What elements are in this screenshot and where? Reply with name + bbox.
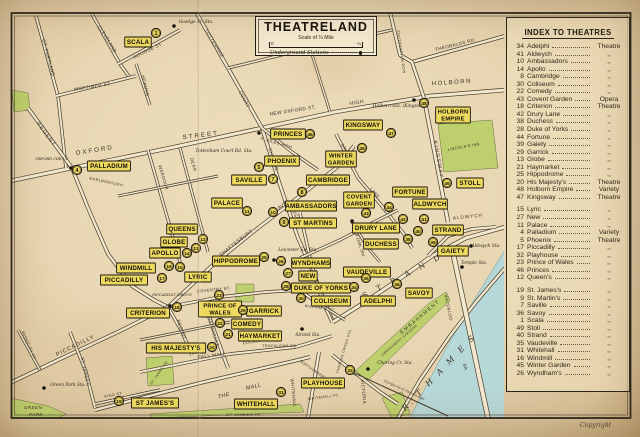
theatre-wyndhams: WYNDHAMS26 xyxy=(276,256,330,268)
index-row: 19St. James's,, xyxy=(511,287,625,295)
index-row-name: Criterion xyxy=(527,103,552,110)
theatre-label: PALACE xyxy=(214,200,240,207)
index-row: 13Globe,, xyxy=(511,156,625,164)
street-label: COURT xyxy=(238,90,251,108)
index-row-leader xyxy=(577,263,590,264)
index-row-leader xyxy=(575,100,590,101)
index-row-name: Coliseum xyxy=(527,81,555,88)
index-row-type: ,, xyxy=(593,171,625,178)
index-row-number: 10 xyxy=(511,58,527,65)
station-dot xyxy=(168,304,172,308)
index-row-leader xyxy=(548,160,590,161)
theatre-st-martins: ST MARTINS9 xyxy=(279,217,336,228)
index-row-number: 21 xyxy=(511,164,527,171)
station-dot xyxy=(366,367,370,371)
index-row-name: Garrick xyxy=(527,149,549,156)
theatre-marker-number: 16 xyxy=(166,264,172,270)
index-row-type: ,, xyxy=(593,244,625,251)
index-row-name: Aldwych xyxy=(527,51,552,58)
theatre-label: ST JAMES'S xyxy=(136,400,175,407)
index-row-name: St. James's xyxy=(527,287,561,294)
index-row-leader xyxy=(558,85,590,86)
road xyxy=(412,36,505,62)
index-row: 12Queen's,, xyxy=(511,274,625,282)
theatre-marker-number: 44 xyxy=(386,205,392,211)
index-row-leader xyxy=(554,241,590,242)
index-row-type: ,, xyxy=(593,134,625,141)
index-row: 27New,, xyxy=(511,214,625,222)
street-label: GT. PORTLAND xyxy=(41,39,56,77)
index-row-leader xyxy=(544,210,590,211)
index-row-leader xyxy=(559,198,590,199)
index-row-type: Variety xyxy=(593,229,625,236)
index-row-type: ,, xyxy=(593,88,625,95)
theatre-label: COMEDY xyxy=(233,321,262,328)
index-row: 46Princes,, xyxy=(511,267,625,275)
index-row-type: ,, xyxy=(593,332,625,339)
theatre-label: SCALA xyxy=(127,39,150,46)
station-label: Charing Cr. Sta. xyxy=(377,361,413,366)
index-row: 35Vaudeville,, xyxy=(511,340,625,348)
index-row-number: 31 xyxy=(511,347,527,354)
street-label: THE xyxy=(217,392,230,401)
theatre-label: QUEENS xyxy=(168,226,195,233)
index-row-leader xyxy=(574,366,591,367)
theatre-label: COLISEUM xyxy=(314,298,348,305)
theatre-marker-number: 9 xyxy=(283,220,286,226)
index-row-number: 42 xyxy=(511,111,527,118)
street-label: MORTIMER ST. xyxy=(74,81,112,92)
index-row-leader xyxy=(558,248,590,249)
index-row-type: ,, xyxy=(593,81,625,88)
index-row-name: Globe xyxy=(527,156,545,163)
index-row-name: Palladium xyxy=(527,229,556,236)
theatre-label: ALDWYCH xyxy=(413,201,446,208)
index-row: 10Ambassadors,, xyxy=(511,58,625,66)
theatre-marker-number: 12 xyxy=(200,237,206,243)
index-row-name: Piccadilly xyxy=(527,244,555,251)
theatre-marker-number: 41 xyxy=(421,217,427,223)
index-row-type: ,, xyxy=(593,325,625,332)
theatre-aldwych: ALDWYCH41 xyxy=(413,199,448,224)
copyright-note: Copyright xyxy=(580,422,611,429)
index-row-type: ,, xyxy=(593,58,625,65)
index-row-type: ,, xyxy=(593,274,625,281)
index-row-leader xyxy=(550,336,590,337)
index-row-number: 49 xyxy=(511,325,527,332)
index-row-number: 27 xyxy=(511,214,527,221)
street-label: TOTTENHAM xyxy=(204,28,225,58)
station-label: Tottenham Court Rd. Sta. xyxy=(196,149,253,154)
index-row-leader xyxy=(563,299,590,300)
index-row-type: ,, xyxy=(593,66,625,73)
station-label: PICCADILLY CIRCUS xyxy=(151,293,192,297)
index-row-number: 4 xyxy=(511,229,527,236)
theatre-lyric: LYRIC15 xyxy=(175,262,211,282)
street-label: OXFORD xyxy=(75,144,114,157)
index-row-leader xyxy=(552,47,590,48)
theatre-label: GARDEN xyxy=(346,201,372,207)
station-dot xyxy=(300,327,304,331)
theatre-label: SAVOY xyxy=(408,290,431,297)
theatre-garrick: GARRICK29 xyxy=(238,305,281,316)
theatre-piccadilly: PICCADILLY17 xyxy=(101,273,167,285)
index-row-name: Holborn Empire xyxy=(527,186,573,193)
index-row-type: ,, xyxy=(593,149,625,156)
index-row-number: 45 xyxy=(511,362,527,369)
theatre-marker-number: 27 xyxy=(285,271,291,277)
theatre-marker-number: 49 xyxy=(444,181,450,187)
theatre-marker-number: 36 xyxy=(394,282,400,288)
index-row-name: Strand xyxy=(527,332,547,339)
street-label: ALDWYCH xyxy=(453,212,483,220)
map-layer: GT. PORTLANDCLEVELANDGOODGE STMORTIMER S… xyxy=(10,12,505,418)
index-row-leader xyxy=(549,70,590,71)
index-row-type: ,, xyxy=(593,310,625,317)
index-group: 34AdelphiTheatre41Aldwych,,10Ambassadors… xyxy=(511,43,625,201)
index-row: 23Prince of Wales,, xyxy=(511,259,625,267)
index-row-number: 20 xyxy=(511,179,527,186)
index-row: 25Hippodrome,, xyxy=(511,171,625,179)
index-row-type: ,, xyxy=(593,222,625,229)
theatre-marker-number: 40 xyxy=(415,229,421,235)
index-row-name: Prince of Wales xyxy=(527,259,574,266)
index-row-leader xyxy=(563,115,590,116)
index-row-type: ,, xyxy=(593,355,625,362)
theatre-label: KINGSWAY xyxy=(346,122,381,129)
index-row-type: ,, xyxy=(593,340,625,347)
index-row-number: 43 xyxy=(511,96,527,103)
index-row-name: Hippodrome xyxy=(527,171,563,178)
theatre-label: PALLADIUM xyxy=(90,163,128,170)
index-row-leader xyxy=(559,233,590,234)
theatre-label: CAMBRIDGE xyxy=(308,177,348,184)
index-row-type: Opera xyxy=(593,96,625,103)
theatre-marker-number: 45 xyxy=(359,146,365,152)
index-row-leader xyxy=(552,271,590,272)
map-title: THEATRELAND xyxy=(256,20,376,34)
station-dot xyxy=(172,24,176,28)
index-row: 8Cambridge,, xyxy=(511,73,625,81)
street-label: EMBANKMENT GARDENS xyxy=(381,324,419,357)
index-row: 22Comedy,, xyxy=(511,88,625,96)
theatre-label: EMPIRE xyxy=(441,116,464,122)
index-row-name: Lyric xyxy=(527,206,541,213)
index-row-number: 44 xyxy=(511,134,527,141)
index-row-leader xyxy=(550,306,590,307)
theatre-label: WALES xyxy=(209,310,231,316)
index-row-leader xyxy=(558,351,590,352)
index-row-name: Phoenix xyxy=(527,237,551,244)
index-row: 39Gaiety,, xyxy=(511,141,625,149)
station-dot xyxy=(42,386,46,390)
index-row: 45Winter Garden,, xyxy=(511,362,625,370)
theatre-marker-number: 1 xyxy=(155,31,158,37)
index-row-name: Princes xyxy=(527,267,549,274)
index-row-type: ,, xyxy=(593,252,625,259)
theatre-label: COVENT xyxy=(346,194,372,200)
station-dot xyxy=(412,98,416,102)
index-row-type: ,, xyxy=(593,73,625,80)
street-label: WHITEHALL xyxy=(290,378,298,407)
index-row: 1Scala,, xyxy=(511,317,625,325)
index-row: 18CriterionTheatre xyxy=(511,103,625,111)
index-row-number: 7 xyxy=(511,302,527,309)
index-row-leader xyxy=(563,77,590,78)
theatre-marker-number: 48 xyxy=(421,101,427,107)
index-row-number: 29 xyxy=(511,149,527,156)
theatre-strand: STRAND40 xyxy=(413,225,463,236)
theatre-label: WINDMILL xyxy=(120,265,153,272)
theatre-label: ST MARTINS xyxy=(293,220,333,227)
theatre-label: WYNDHAMS xyxy=(292,260,331,267)
theatre-marker-number: 34 xyxy=(351,285,357,291)
index-row: 42Drury Lane,, xyxy=(511,111,625,119)
index-row-type: ,, xyxy=(593,141,625,148)
street-label: MARLBOROUGH xyxy=(89,176,124,187)
index-row-type: ,, xyxy=(593,362,625,369)
theatre-marker-number: 31 xyxy=(278,390,284,396)
map-title-box: THEATRELAND Scale of ¼ Mile 0 ¼ Undergro… xyxy=(255,16,377,56)
index-row-number: 40 xyxy=(511,332,527,339)
index-row-type: ,, xyxy=(593,206,625,213)
index-row-type: ,, xyxy=(593,118,625,125)
index-row-leader xyxy=(555,55,590,56)
theatre-marker-number: 38 xyxy=(405,237,411,243)
index-row-name: Apollo xyxy=(527,66,546,73)
theatre-label: PRINCE OF xyxy=(203,303,237,309)
map-sheet: GT. PORTLANDCLEVELANDGOODGE STMORTIMER S… xyxy=(0,0,640,437)
theatre-duke-of-yorks: DUKE OF YORKS28 xyxy=(281,281,350,293)
index-row-leader xyxy=(565,374,590,375)
theatre-marker-number: 23 xyxy=(216,293,222,299)
index-row-type: ,, xyxy=(593,126,625,133)
index-group: 15Lyric,,27New,,11Palace,,4PalladiumVari… xyxy=(511,206,625,281)
theatre-marker-number: 7 xyxy=(272,177,275,183)
theatre-stoll: STOLL49 xyxy=(442,178,483,188)
street-label: GREEN xyxy=(24,405,43,410)
index-row-type: ,, xyxy=(593,317,625,324)
index-row-name: Palace xyxy=(527,222,547,229)
index-row: 31Whitehall,, xyxy=(511,347,625,355)
theatre-label: NEW xyxy=(300,273,315,280)
index-row-number: 39 xyxy=(511,141,527,148)
index-row-type: Theatre xyxy=(593,237,625,244)
street-label: SHAFTESBURY xyxy=(218,228,254,258)
theatre-label: HIPPODROME xyxy=(214,258,258,265)
index-row-leader xyxy=(555,92,590,93)
theatre-saville: SAVILLE7 xyxy=(232,174,278,185)
legend-leader xyxy=(331,52,357,53)
theatre-marker-number: 18 xyxy=(174,305,180,311)
theatre-marker-number: 21 xyxy=(225,332,231,338)
index-row: 11Palace,, xyxy=(511,222,625,230)
index-row-leader xyxy=(561,256,590,257)
index-row-leader xyxy=(547,321,590,322)
theatre-marker-number: 19 xyxy=(116,399,122,405)
index-row-type: ,, xyxy=(593,156,625,163)
index-list: 34AdelphiTheatre41Aldwych,,10Ambassadors… xyxy=(511,43,625,378)
index-row-name: New xyxy=(527,214,540,221)
road xyxy=(390,12,424,98)
street-label: TRAFALGAR SQ. xyxy=(262,344,297,348)
index-row: 34AdelphiTheatre xyxy=(511,43,625,51)
theatre-apollo: APOLLO14 xyxy=(150,248,192,258)
theatre-marker-number: 46 xyxy=(307,132,313,138)
theatre-marker-number: 30 xyxy=(298,296,304,302)
index-row-name: Haymarket xyxy=(527,164,559,171)
theatre-marker-number: 14 xyxy=(184,251,190,257)
index-row-name: Saville xyxy=(527,302,547,309)
station-label: Aldwych Sta. xyxy=(470,244,500,249)
index-row-number: 18 xyxy=(511,103,527,110)
index-row-leader xyxy=(576,190,590,191)
theatre-label: DUCHESS xyxy=(365,241,397,248)
station-label: Green Park Sta. xyxy=(50,383,85,388)
theatre-marker-number: 11 xyxy=(244,209,249,215)
theatre-duchess: DUCHESS38 xyxy=(364,234,413,249)
index-row: 14Apollo,, xyxy=(511,66,625,74)
index-row-name: Adelphi xyxy=(527,43,549,50)
theatre-label: PHOENIX xyxy=(267,158,297,165)
index-row: 47KingswayTheatre xyxy=(511,194,625,202)
theatre-label: HIS MAJESTY'S xyxy=(151,345,200,352)
index-row: 49Stoll,, xyxy=(511,325,625,333)
index-row: 40Strand,, xyxy=(511,332,625,340)
index-row-type: ,, xyxy=(593,347,625,354)
theatre-label: GARDEN xyxy=(328,160,354,166)
index-row-type: ,, xyxy=(593,111,625,118)
index-row-name: Windmill xyxy=(527,355,552,362)
index-row-number: 28 xyxy=(511,126,527,133)
index-row: 28Duke of Yorks,, xyxy=(511,126,625,134)
index-row-number: 47 xyxy=(511,194,527,201)
street-label: COVENTRY ST. xyxy=(197,285,231,294)
road xyxy=(310,48,330,112)
theatre-label: WHITEHALL xyxy=(237,401,275,408)
theatre-label: HOLBORN xyxy=(438,109,469,115)
index-row: 5PhoenixTheatre xyxy=(511,237,625,245)
station-dot xyxy=(257,131,261,135)
index-row-number: 15 xyxy=(511,206,527,213)
theatre-marker-number: 15 xyxy=(177,265,183,271)
index-row-name: His Majesty's xyxy=(527,179,566,186)
theatre-windmill: WINDMILL16 xyxy=(117,261,174,273)
index-row: 26Wyndham's,, xyxy=(511,370,625,378)
index-row-type: ,, xyxy=(593,295,625,302)
index-panel: INDEX TO THEATRES 34AdelphiTheatre41Aldw… xyxy=(506,17,630,392)
theatre-label: STRAND xyxy=(435,227,462,234)
index-row: 48Holborn EmpireVariety xyxy=(511,186,625,194)
index-row-number: 48 xyxy=(511,186,527,193)
street-label: HOLBORN xyxy=(432,79,472,88)
index-row-name: Ambassadors xyxy=(527,58,568,65)
theatre-palladium: PALLADIUM4 xyxy=(72,161,130,175)
theatre-marker-number: 42 xyxy=(400,217,406,223)
theatre-label: DUKE OF YORKS xyxy=(294,285,348,292)
underground-legend: Underground Stations xyxy=(256,50,376,56)
index-row-leader xyxy=(571,130,590,131)
index-row-number: 13 xyxy=(511,156,527,163)
index-group: 19St. James's,,9St. Martin's,,7Saville,,… xyxy=(511,287,625,378)
index-row-number: 35 xyxy=(511,340,527,347)
index-row-name: St. Martin's xyxy=(527,295,560,302)
index-row-leader xyxy=(564,291,590,292)
theatre-label: WINTER xyxy=(329,153,354,159)
index-row-leader xyxy=(555,278,590,279)
index-row: 36Savoy,, xyxy=(511,310,625,318)
index-row-number: 23 xyxy=(511,259,527,266)
index-row: 41Aldwych,, xyxy=(511,51,625,59)
index-row-name: Queen's xyxy=(527,274,552,281)
index-row-type: Theatre xyxy=(593,43,625,50)
theatre-marker-number: 8 xyxy=(301,190,304,196)
index-row-leader xyxy=(543,329,590,330)
theatre-label: GAIETY xyxy=(441,248,466,255)
index-row-leader xyxy=(553,138,590,139)
theatre-marker-number: 26 xyxy=(278,259,284,265)
index-row-number: 46 xyxy=(511,267,527,274)
index-row-number: 26 xyxy=(511,370,527,377)
theatre-marker-number: 10 xyxy=(270,210,276,216)
index-row-number: 30 xyxy=(511,81,527,88)
station-dot xyxy=(272,258,276,262)
station-label: Strand Sta. xyxy=(295,333,320,338)
index-row-type: ,, xyxy=(593,287,625,294)
index-row-leader xyxy=(566,175,590,176)
index-row-leader xyxy=(555,359,590,360)
index-row-name: Stoll xyxy=(527,325,540,332)
index-row-name: Savoy xyxy=(527,310,546,317)
index-row-name: Scala xyxy=(527,317,544,324)
index-row-name: Gaiety xyxy=(527,141,546,148)
theatre-his-majesty-s: HIS MAJESTY'S20 xyxy=(146,342,216,353)
index-row-type: ,, xyxy=(593,164,625,171)
scale-bar: 0 ¼ xyxy=(269,42,363,48)
theatre-marker-number: 17 xyxy=(159,276,165,282)
index-row-leader xyxy=(560,344,590,345)
index-row-leader xyxy=(552,153,590,154)
theatre-marker-number: 29 xyxy=(240,308,246,314)
index-row-number: 17 xyxy=(511,244,527,251)
index-row-type: ,, xyxy=(593,51,625,58)
index-row-type: Variety xyxy=(593,186,625,193)
theatre-savoy: SAVOY36 xyxy=(392,279,432,298)
index-row-number: 1 xyxy=(511,317,527,324)
index-header: INDEX TO THEATRES xyxy=(511,22,625,40)
index-row-type: ,, xyxy=(593,214,625,221)
index-row: 20His Majesty'sTheatre xyxy=(511,179,625,187)
scale-quarter: ¼ xyxy=(357,42,361,47)
theatre-marker-number: 5 xyxy=(258,165,261,171)
street-label: WATERLOO xyxy=(443,294,454,321)
index-row: 4PalladiumVariety xyxy=(511,229,625,237)
theatre-marker-number: 43 xyxy=(363,211,369,217)
street-label: PARK xyxy=(29,412,43,417)
station-label: Goodge St. Sta. xyxy=(179,20,214,25)
index-row: 32Playhouse,, xyxy=(511,252,625,260)
index-row-type: ,, xyxy=(593,259,625,266)
theatre-kingsway: KINGSWAY47 xyxy=(344,120,396,138)
index-row-name: Covent Garden xyxy=(527,96,572,103)
theatre-palace: PALACE11 xyxy=(212,198,252,216)
index-row-number: 41 xyxy=(511,51,527,58)
scale-zero: 0 xyxy=(271,42,274,47)
index-row-number: 12 xyxy=(511,274,527,281)
index-row: 43Covent GardenOpera xyxy=(511,96,625,104)
index-row-type: Theatre xyxy=(593,179,625,186)
index-row: 29Garrick,, xyxy=(511,149,625,157)
